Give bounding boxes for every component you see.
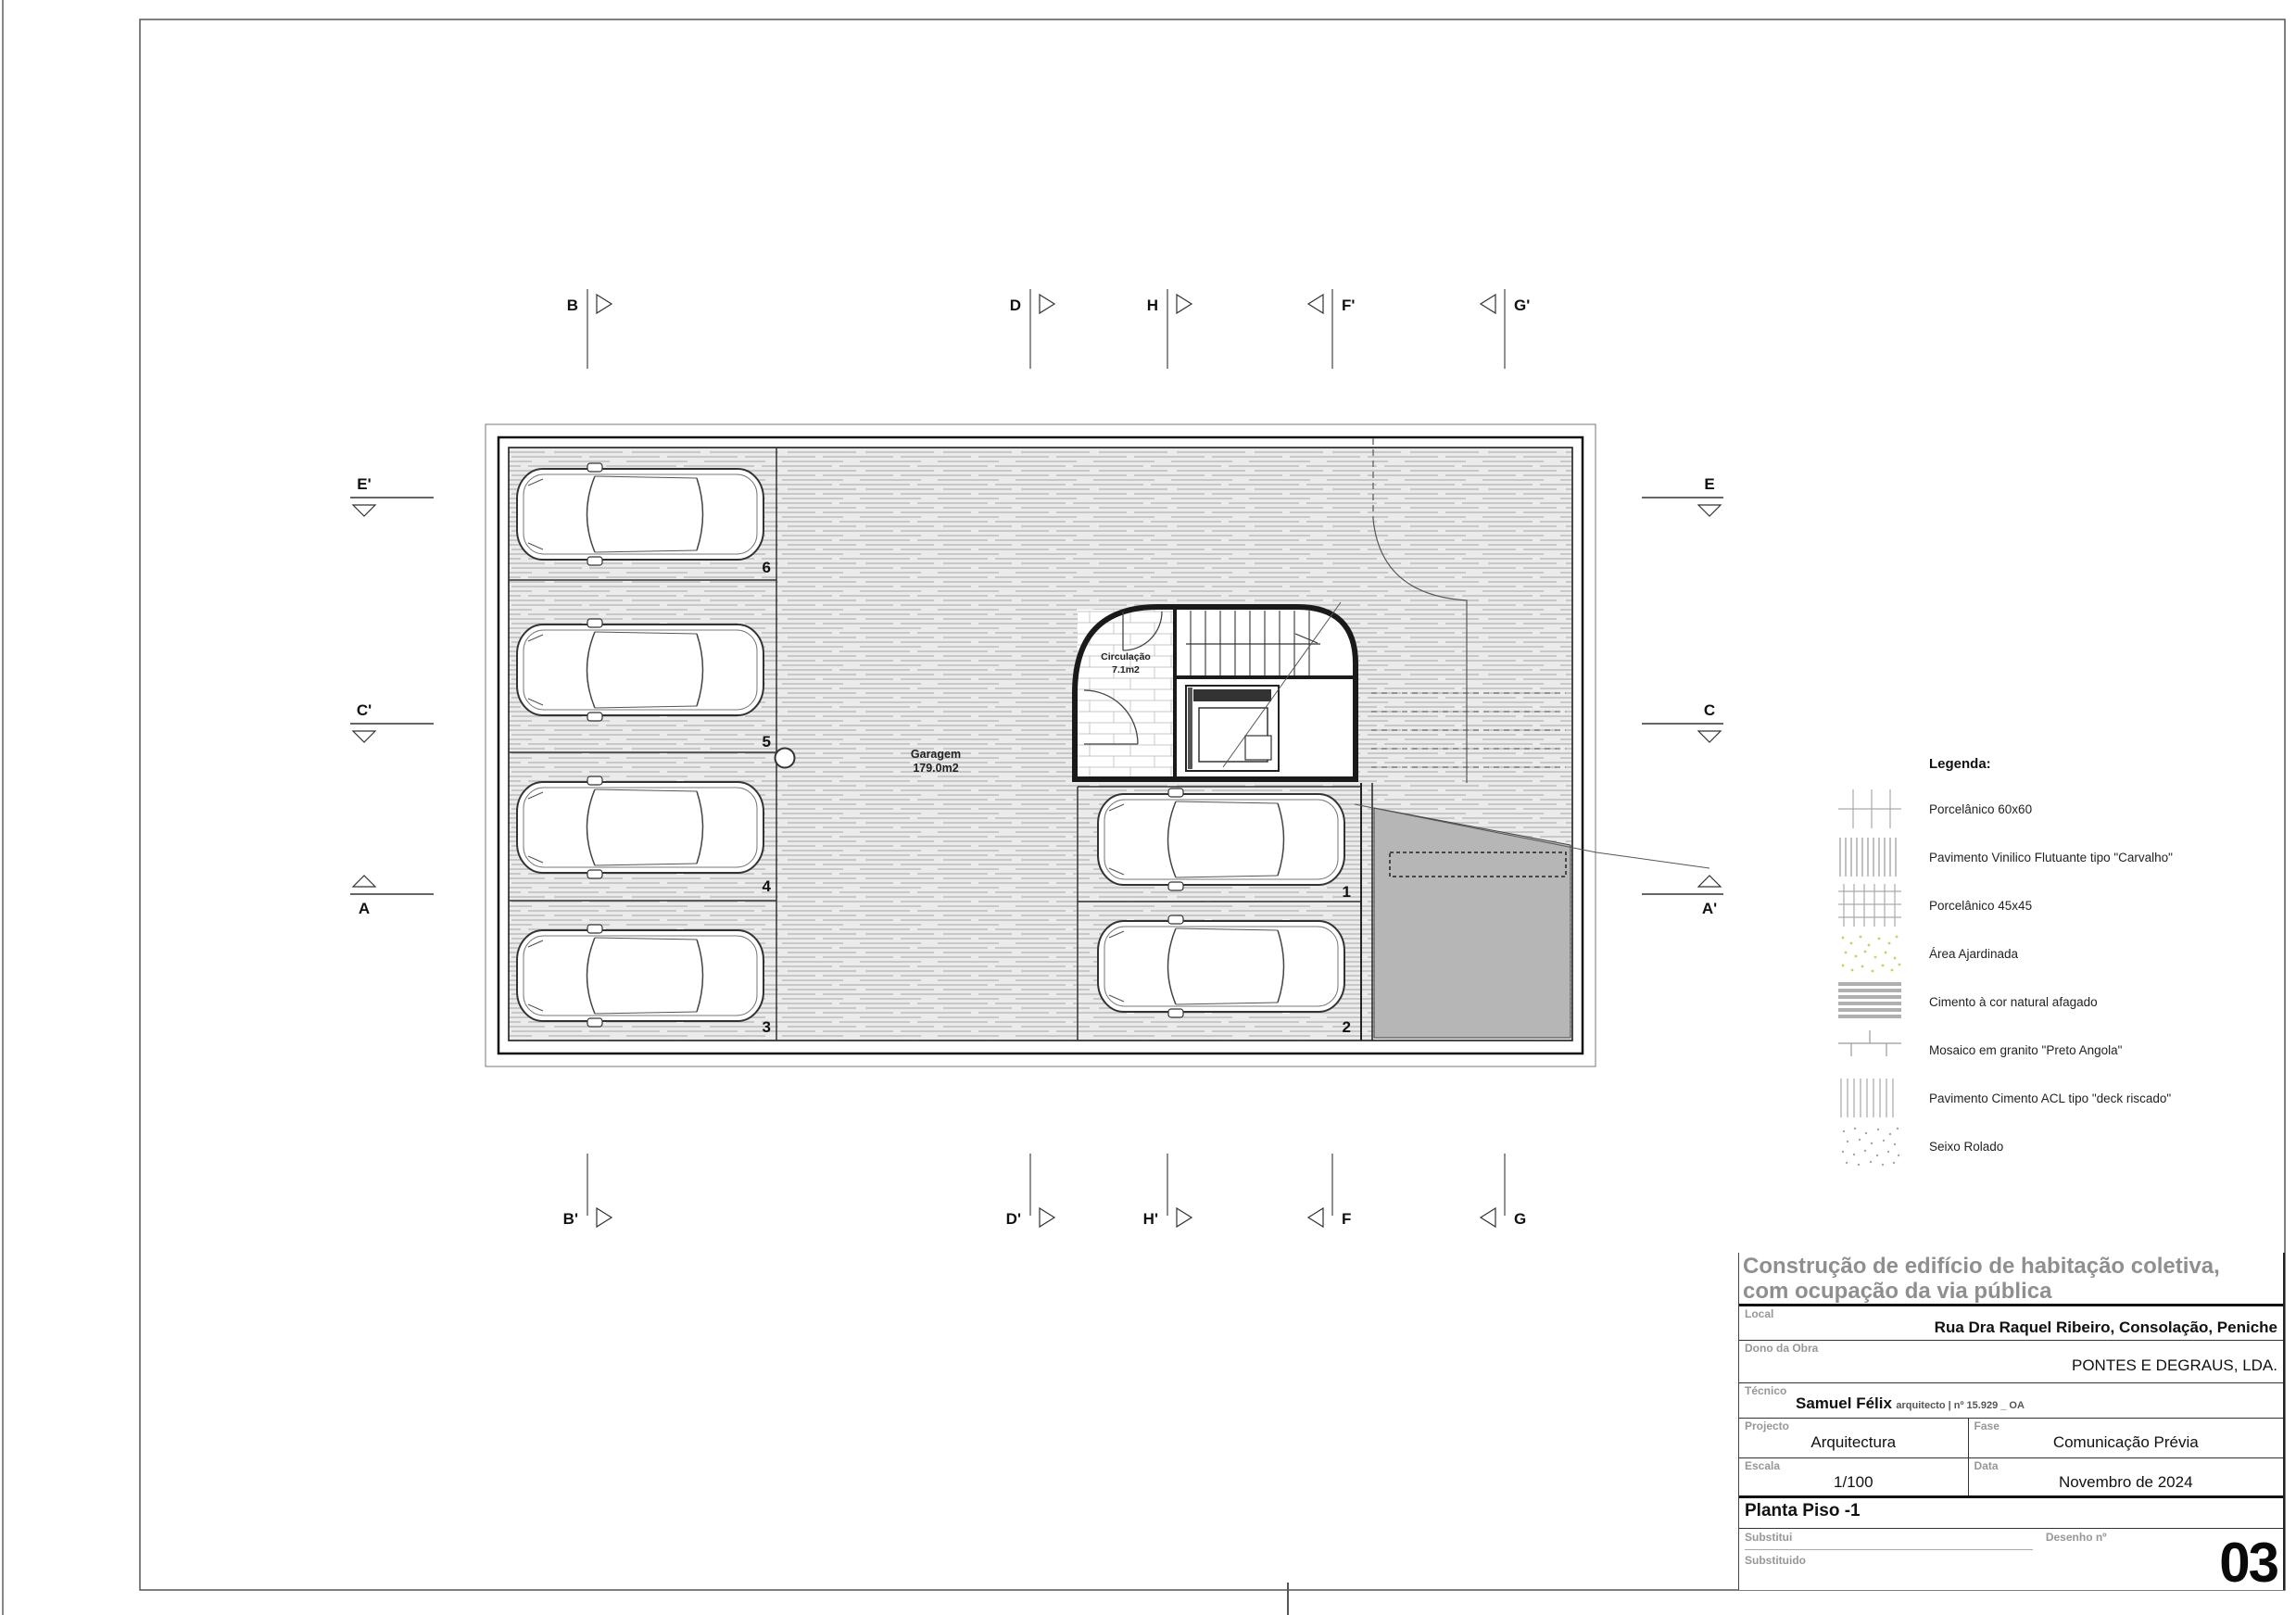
gray-speckles-swatch-icon	[1838, 1125, 1901, 1167]
legend-item: Porcelânico 45x45	[1833, 881, 2268, 929]
project-value: Arquitectura	[1745, 1433, 1962, 1452]
stall-number: 4	[763, 877, 772, 895]
date-label: Data	[1974, 1459, 2277, 1472]
scale-value: 1/100	[1745, 1473, 1962, 1492]
drawing-no-value: 03	[2219, 1531, 2277, 1595]
section-marker-E: E	[1642, 475, 1723, 516]
parking-car	[1098, 789, 1344, 890]
owner-row: Dono da Obra PONTES E DEGRAUS, LDA.	[1739, 1341, 2283, 1383]
section-marker-E-prime: E'	[350, 475, 434, 516]
project-label: Projecto	[1745, 1419, 1962, 1432]
phase-value: Comunicação Prévia	[1974, 1433, 2277, 1452]
legend-item-label: Área Ajardinada	[1929, 947, 2018, 961]
svg-text:F: F	[1342, 1210, 1351, 1228]
parking-car	[517, 925, 763, 1027]
section-marker-B-prime: B'	[563, 1154, 612, 1228]
section-marker-D-prime: D'	[1006, 1154, 1054, 1228]
section-marker-G: G	[1481, 1154, 1526, 1228]
legend-item-label: Porcelânico 45x45	[1929, 899, 2032, 913]
svg-text:B': B'	[563, 1210, 578, 1228]
garage-label: Garagem	[911, 748, 961, 761]
circulation-label: Circulação	[1101, 651, 1151, 662]
svg-text:A: A	[359, 900, 370, 917]
legend-item-label: Cimento à cor natural afagado	[1929, 995, 2098, 1009]
local-value: Rua Dra Raquel Ribeiro, Consolação, Peni…	[1745, 1318, 2277, 1337]
legend-item: Cimento à cor natural afagado	[1833, 978, 2268, 1026]
legend-item-label: Pavimento Cimento ACL tipo "deck riscado…	[1929, 1091, 2171, 1105]
sheet-name: Planta Piso -1	[1739, 1498, 2283, 1529]
svg-text:G': G'	[1514, 297, 1530, 314]
gray-stripes-swatch-icon	[1838, 980, 1901, 1023]
legend-item: Área Ajardinada	[1833, 929, 2268, 978]
circulation-area-label: 7.1m2	[1112, 664, 1140, 675]
stall-number: 1	[1343, 883, 1351, 901]
svg-text:G: G	[1514, 1210, 1526, 1228]
legend-item-label: Seixo Rolado	[1929, 1140, 2003, 1154]
parking-car	[517, 619, 763, 721]
replaces-label: Substitui	[1745, 1531, 2033, 1544]
svg-text:H: H	[1147, 297, 1158, 314]
section-marker-C-prime: C'	[350, 701, 434, 742]
section-marker-H: H	[1147, 289, 1192, 369]
green-speckles-swatch-icon	[1838, 932, 1901, 975]
legend-item: Pavimento Cimento ACL tipo "deck riscado…	[1833, 1074, 2268, 1122]
svg-text:H': H'	[1143, 1210, 1158, 1228]
legend-item: Mosaico em granito "Preto Angola"	[1833, 1026, 2268, 1074]
svg-text:D: D	[1010, 297, 1021, 314]
light-vertical-lines-swatch-icon	[1838, 1077, 1901, 1119]
tick-lines-swatch-icon	[1838, 1028, 1901, 1071]
section-marker-A-prime: A'	[1642, 876, 1723, 917]
vertical-lines-swatch-icon	[1838, 836, 1901, 878]
project-title-line2: com ocupação da via pública	[1743, 1280, 2279, 1305]
ramp-slab	[1374, 808, 1571, 1038]
replaced-label: Substituido	[1745, 1554, 2033, 1567]
svg-text:E: E	[1704, 475, 1714, 493]
svg-text:E': E'	[357, 475, 371, 493]
drawing-sheet: 6 5 4 3 1 2 Garagem 179.0m2	[0, 0, 2296, 1615]
grid-dense-swatch-icon	[1838, 884, 1901, 927]
svg-text:B: B	[567, 297, 578, 314]
svg-text:C: C	[1704, 701, 1715, 719]
technician-name: Samuel Félix	[1796, 1394, 1892, 1412]
section-marker-F: F	[1308, 1154, 1351, 1228]
section-marker-H-prime: H'	[1143, 1154, 1192, 1228]
project-title-line1: Construção de edifício de habitação cole…	[1743, 1255, 2279, 1280]
date-value: Novembro de 2024	[1974, 1473, 2277, 1492]
section-marker-G-prime: G'	[1481, 289, 1530, 369]
svg-text:D': D'	[1006, 1210, 1021, 1228]
legend-item: Porcelânico 60x60	[1833, 785, 2268, 833]
stall-number: 6	[763, 559, 771, 576]
legend-title: Legenda:	[1929, 756, 2268, 772]
parking-car	[1098, 915, 1344, 1017]
parking-car	[517, 776, 763, 878]
section-marker-C: C	[1642, 701, 1723, 742]
technician-row: Técnico Samuel Félix arquitecto | nº 15.…	[1739, 1383, 2283, 1419]
legend-item-label: Porcelânico 60x60	[1929, 802, 2032, 816]
owner-value: PONTES E DEGRAUS, LDA.	[1745, 1356, 2277, 1375]
elevator	[1186, 686, 1279, 771]
scale-label: Escala	[1745, 1459, 1962, 1472]
technician-title: arquitecto | nº 15.929 _ OA	[1896, 1400, 2025, 1411]
parking-car	[517, 463, 763, 565]
local-row: Local Rua Dra Raquel Ribeiro, Consolação…	[1739, 1306, 2283, 1341]
legend-item-label: Pavimento Vinilico Flutuante tipo "Carva…	[1929, 851, 2173, 864]
structural-column	[776, 749, 795, 768]
scale-date-row: Escala 1/100 Data Novembro de 2024	[1739, 1458, 2283, 1498]
section-marker-A: A	[350, 876, 434, 917]
legend: Legenda: Porcelânico 60x60 Pavimento Vin…	[1833, 756, 2268, 1170]
section-marker-F-prime: F'	[1308, 289, 1355, 369]
legend-item: Seixo Rolado	[1833, 1122, 2268, 1170]
section-marker-B: B	[567, 289, 612, 369]
stall-number: 5	[763, 733, 771, 751]
svg-text:A': A'	[1702, 900, 1717, 917]
svg-text:F': F'	[1342, 297, 1355, 314]
phase-label: Fase	[1974, 1419, 2277, 1432]
grid-sparse-swatch-icon	[1838, 788, 1901, 830]
stall-number: 3	[763, 1018, 771, 1036]
garage-area-label: 179.0m2	[913, 762, 958, 775]
project-phase-row: Projecto Arquitectura Fase Comunicação P…	[1739, 1419, 2283, 1458]
revision-row: Substitui Substituido Desenho nº 03	[1739, 1529, 2283, 1590]
project-title: Construção de edifício de habitação cole…	[1739, 1253, 2283, 1306]
title-block: Construção de edifício de habitação cole…	[1738, 1253, 2285, 1590]
svg-text:C': C'	[357, 701, 372, 719]
legend-item: Pavimento Vinilico Flutuante tipo "Carva…	[1833, 833, 2268, 881]
legend-item-label: Mosaico em granito "Preto Angola"	[1929, 1043, 2122, 1057]
replaces-divider	[1745, 1549, 2033, 1550]
owner-label: Dono da Obra	[1745, 1342, 2277, 1355]
stall-number: 2	[1343, 1018, 1351, 1036]
section-marker-D: D	[1010, 289, 1054, 369]
